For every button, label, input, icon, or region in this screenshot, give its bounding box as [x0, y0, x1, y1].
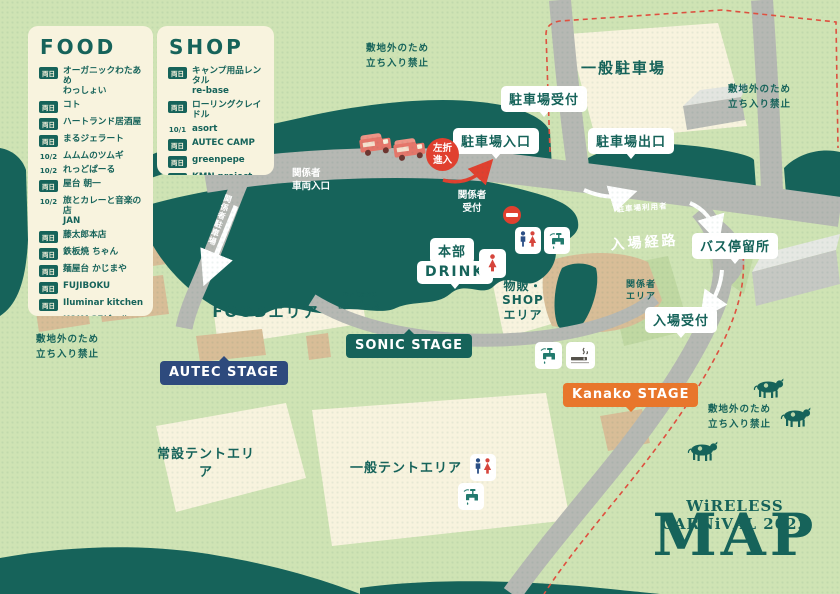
vendor-name: 麺屋台 かじまや — [63, 264, 127, 274]
day-tag: 両日 — [39, 265, 58, 277]
restroom-icon — [515, 227, 541, 254]
legend-item: 両日屋台 朝一 — [28, 177, 153, 194]
vendor-name: 藤太郎本店 — [63, 230, 106, 240]
vendor-name: ローリングクレイドル — [192, 100, 268, 120]
parking-entrance-road — [560, 0, 578, 168]
day-tag: 両日 — [168, 101, 187, 113]
day-tag: 10/2 — [39, 197, 58, 206]
day-tag: 両日 — [39, 101, 58, 113]
legend-item: 両日FUJIBOKU — [28, 279, 153, 296]
day-tag: 両日 — [168, 67, 187, 79]
entry-route-note: 駐車場利用者 — [594, 199, 689, 216]
vendor-name: ハートランド居酒屋 — [63, 117, 141, 127]
vendor-name: FUJIBOKU — [63, 281, 110, 291]
day-tag: 両日 — [168, 156, 187, 168]
legend-item: 10/2旅とカレーと音楽の店 JAN — [28, 194, 153, 228]
kanako-stage-label: Kanako STAGE — [563, 383, 698, 407]
vendor-name: ムムムのツムギ — [63, 151, 124, 161]
vendor-name: れっどぱーる — [63, 165, 115, 175]
vendor-name: まるジェラート — [63, 134, 124, 144]
shop-legend-panel: SHOP 両日キャンプ用品レンタル re-base両日ローリングクレイドル10/… — [157, 26, 274, 175]
no-entry-icon — [503, 206, 521, 224]
off-limits-note: 敷地外のため 立ち入り禁止 — [692, 403, 787, 432]
legend-item: 両日コト — [28, 98, 153, 115]
food-legend-panel: FOOD 両日オーガニックわたあめ わっしょい両日コト両日ハートランド居酒屋両日… — [28, 26, 153, 316]
day-tag: 両日 — [39, 118, 58, 130]
sonic-stage-label: SONIC STAGE — [346, 334, 472, 358]
vendor-name: 旅とカレーと音楽の店 JAN — [63, 196, 147, 226]
staff-area-label: 関係者 エリア — [616, 280, 666, 303]
day-tag: 10/1 — [168, 125, 187, 134]
entry-reception-label: 入場受付 — [645, 307, 717, 333]
entry-route-label: 駐車場利用者 入場経路 — [593, 178, 694, 278]
day-tag: 両日 — [39, 231, 58, 243]
parking-exit-label: 駐車場出口 — [588, 128, 674, 154]
vendor-name: greenpepe — [192, 155, 245, 165]
food-heading: FOOD — [40, 35, 153, 59]
food-area-label: FOODエリア — [206, 302, 326, 323]
day-tag: 10/2 — [39, 152, 58, 161]
day-tag: 10/2 — [39, 166, 58, 175]
legend-item: 両日AUTEC CAMP — [157, 136, 274, 153]
rebase-booth-label: re-base 出店ブース — [330, 290, 388, 312]
legend-item: 両日麺屋台 かじまや — [28, 262, 153, 279]
permanent-tent-area-label: 常設テントエリア — [152, 446, 260, 482]
day-tag: 両日 — [39, 135, 58, 147]
entry-route-text: 入場経路 — [597, 231, 693, 256]
legend-item: 両日藤太郎本店 — [28, 228, 153, 245]
legend-item: 両日ローリングクレイドル — [157, 98, 274, 122]
vendor-name: asort — [192, 124, 217, 134]
water-tap-icon — [535, 342, 562, 369]
day-tag: 両日 — [168, 173, 187, 175]
food-list: 両日オーガニックわたあめ わっしょい両日コト両日ハートランド居酒屋両日まるジェラ… — [28, 64, 153, 316]
vendor-name: コト — [63, 100, 80, 110]
legend-item: 両日KOKAGEビール — [28, 313, 153, 316]
legend-item: 10/1asort — [157, 122, 274, 136]
staff-vehicle-gate-label: 関係者 車両入口 — [292, 168, 346, 194]
shop-heading: SHOP — [169, 35, 274, 59]
off-limits-note: 敷地外のため 立ち入り禁止 — [712, 83, 807, 112]
water-tap-icon — [458, 483, 484, 510]
legend-item: 両日鉄板焼 ちゃん — [28, 245, 153, 262]
vendor-name: 屋台 朝一 — [63, 179, 101, 189]
parking-reception-label: 駐車場受付 — [501, 86, 587, 112]
women-restroom-icon — [479, 249, 506, 278]
vendor-name: オーガニックわたあめ わっしょい — [63, 66, 147, 96]
vendor-name: KOKAGEビール — [63, 315, 129, 316]
bus-stop-label: バス停留所 — [692, 233, 778, 259]
day-tag: 両日 — [39, 299, 58, 311]
shop-list: 両日キャンプ用品レンタル re-base両日ローリングクレイドル10/1asor… — [157, 64, 274, 175]
legend-item: 両日ハートランド居酒屋 — [28, 115, 153, 132]
vendor-name: Iluminar kitchen — [63, 298, 143, 308]
staff-reception-label: 関係者 受付 — [450, 190, 494, 216]
event-map: FOOD 両日オーガニックわたあめ わっしょい両日コト両日ハートランド居酒屋両日… — [0, 0, 840, 594]
legend-item: 両日KMN project(キモノプロジェクト) — [157, 170, 274, 175]
off-limits-note: 敷地外のため 立ち入り禁止 — [350, 42, 445, 71]
off-limits-note: 敷地外のため 立ち入り禁止 — [20, 333, 115, 362]
day-tag: 両日 — [39, 67, 58, 79]
legend-item: 両日オーガニックわたあめ わっしょい — [28, 64, 153, 98]
legend-item: 10/2ムムムのツムギ — [28, 149, 153, 163]
legend-item: 両日greenpepe — [157, 153, 274, 170]
general-parking-label: 一般駐車場 — [566, 58, 681, 79]
day-tag: 両日 — [39, 180, 58, 192]
left-turn-badge: 左折 進入 — [426, 138, 459, 171]
goods-shop-area-label: 物販・ SHOP エリア — [494, 279, 552, 322]
vendor-name: AUTEC CAMP — [192, 138, 255, 148]
smoking-area-icon — [566, 342, 595, 369]
water-tap-icon — [544, 227, 570, 254]
legend-item: 両日キャンプ用品レンタル re-base — [157, 64, 274, 98]
legend-item: 両日Iluminar kitchen — [28, 296, 153, 313]
restroom-icon — [470, 454, 496, 481]
vendor-name: KMN project(キモノプロジェクト) — [192, 172, 254, 175]
legend-item: 両日まるジェラート — [28, 132, 153, 149]
parking-entrance-label: 駐車場入口 — [453, 128, 539, 154]
day-tag: 両日 — [39, 248, 58, 260]
vendor-name: 鉄板焼 ちゃん — [63, 247, 118, 257]
day-tag: 両日 — [39, 282, 58, 294]
day-tag: 両日 — [168, 139, 187, 151]
general-tent-area-label: 一般テントエリア — [350, 460, 462, 478]
vendor-name: キャンプ用品レンタル re-base — [192, 66, 268, 96]
autec-stage-label: AUTEC STAGE — [160, 361, 288, 385]
map-title: MAP — [640, 504, 830, 568]
legend-item: 10/2れっどぱーる — [28, 163, 153, 177]
